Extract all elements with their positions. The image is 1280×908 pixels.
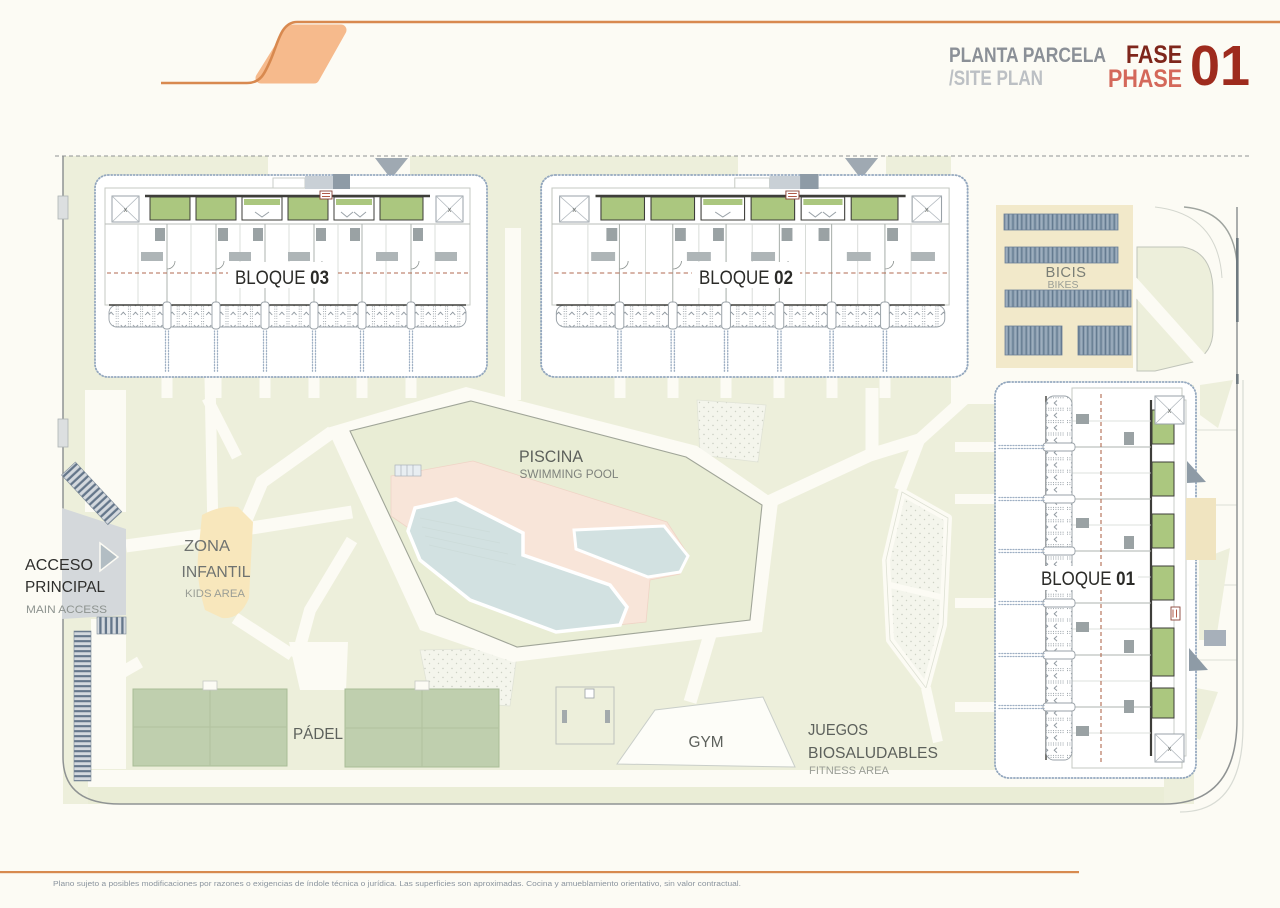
- svg-text:BIOSALUDABLES: BIOSALUDABLES: [808, 745, 938, 762]
- svg-text:MAIN ACCESS: MAIN ACCESS: [26, 604, 107, 616]
- svg-text:Plano sujeto a posibles modifi: Plano sujeto a posibles modificaciones p…: [53, 881, 741, 888]
- svg-text:x: x: [1168, 746, 1172, 753]
- svg-text:JUEGOS: JUEGOS: [808, 722, 868, 739]
- svg-text:/SITE PLAN: /SITE PLAN: [949, 67, 1043, 90]
- svg-text:SWIMMING POOL: SWIMMING POOL: [520, 467, 619, 481]
- svg-text:KIDS AREA: KIDS AREA: [185, 588, 246, 600]
- svg-text:BICIS: BICIS: [1046, 264, 1087, 281]
- svg-text:BLOQUE 01: BLOQUE 01: [1041, 569, 1135, 590]
- svg-text:ZONA: ZONA: [184, 538, 230, 555]
- svg-text:BIKES: BIKES: [1048, 280, 1079, 291]
- svg-text:PISCINA: PISCINA: [519, 447, 584, 466]
- svg-text:BLOQUE 03: BLOQUE 03: [235, 268, 329, 289]
- svg-text:PLANTA PARCELA: PLANTA PARCELA: [949, 44, 1106, 67]
- svg-text:PHASE: PHASE: [1108, 65, 1182, 93]
- svg-text:GYM: GYM: [689, 734, 724, 751]
- svg-text:PRINCIPAL: PRINCIPAL: [25, 579, 105, 596]
- svg-text:01: 01: [1190, 34, 1250, 98]
- svg-text:PÁDEL: PÁDEL: [293, 726, 343, 743]
- svg-text:x: x: [1168, 408, 1172, 415]
- svg-text:ACCESO: ACCESO: [25, 557, 93, 574]
- svg-text:INFANTIL: INFANTIL: [182, 564, 251, 581]
- svg-text:BLOQUE 02: BLOQUE 02: [699, 268, 793, 289]
- svg-text:FITNESS AREA: FITNESS AREA: [809, 765, 890, 777]
